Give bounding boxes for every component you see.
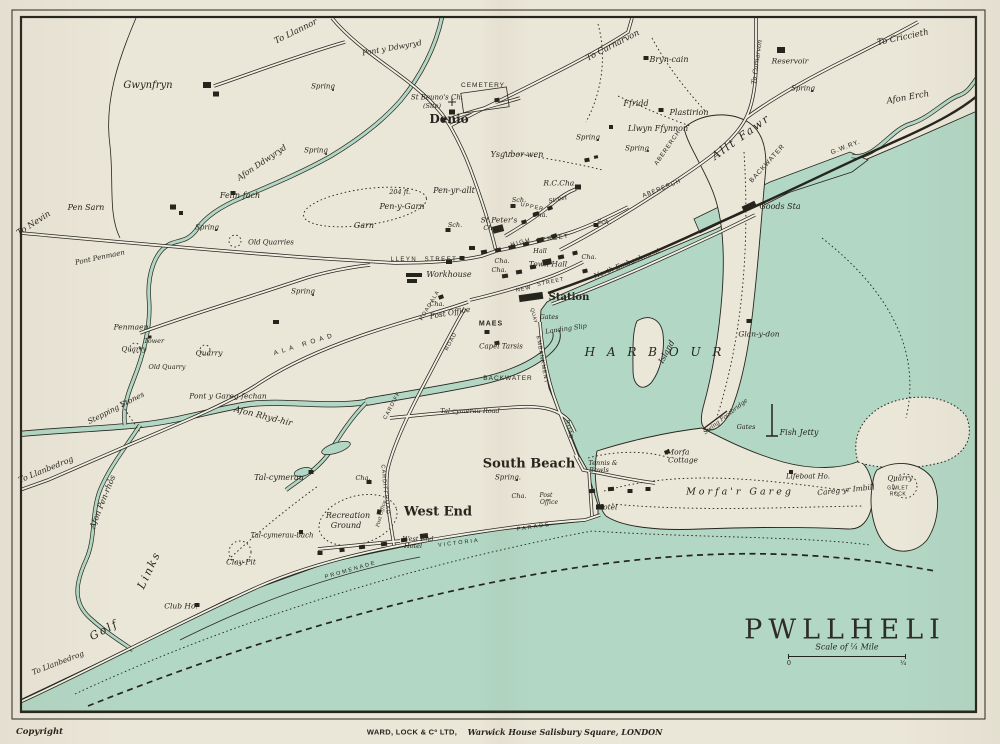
publisher-address: Warwick House Salisbury Square, LONDON: [468, 727, 663, 737]
scale-label: Scale of ¼ Mile: [815, 643, 878, 652]
south-beach-hotel-mark: [596, 505, 604, 510]
club-house-mark: [195, 603, 200, 607]
scale-zero: 0: [787, 659, 791, 667]
vintage-town-plan-pwllheli: GwynfrynTo LlannorPont y DdwyrydSpringSp…: [0, 0, 1000, 744]
west-end-hotel-mark: [420, 533, 429, 539]
reservoir-mark: [777, 47, 785, 53]
workhouse-mark: [406, 273, 422, 277]
lifeboat-house-mark: [789, 470, 793, 474]
scale-bar: [788, 656, 906, 657]
scale-quarter: ¼: [900, 659, 906, 667]
publisher-imprint: WARD, LOCK & Cº LTD,: [367, 728, 457, 737]
gimlet-rock: [871, 463, 938, 551]
map-title: PWLLHELI: [744, 615, 946, 646]
tower-mark: [149, 336, 152, 339]
rc-chapel-mark: [575, 185, 581, 190]
copyright-note: Copyright: [16, 727, 63, 737]
